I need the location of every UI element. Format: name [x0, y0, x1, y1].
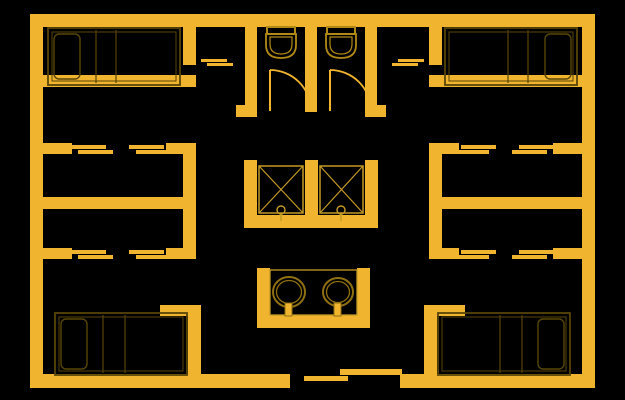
bed-pillow: [545, 34, 571, 79]
wall-closet-l-mid: [43, 197, 196, 209]
wall-outer-top: [30, 14, 595, 27]
door-swing-arc: [270, 70, 311, 111]
toilet-2: [326, 27, 356, 58]
sink-counter: [270, 270, 357, 315]
toilet-tank: [327, 27, 355, 34]
toilet-1: [266, 27, 296, 58]
wall-closet-l-bottom-a: [43, 248, 72, 259]
sliding-door-closet-r-top-2a: [461, 145, 496, 149]
wall-closet-l-top-a: [43, 143, 72, 154]
sliding-door-closet-r-top-2b: [454, 150, 489, 154]
sliding-door-closet-r-top-1a: [519, 145, 554, 149]
toilet-bowl-inner: [270, 37, 292, 54]
floor-plan-canvas: [0, 0, 625, 400]
wall-bedroom-br-west: [424, 305, 437, 388]
sink-faucet-1: [285, 303, 292, 316]
toilet-bowl-inner: [330, 37, 352, 54]
sliding-door-closet-r-top-1b: [512, 150, 547, 154]
sliding-door-closet-l-top-1a: [71, 145, 106, 149]
wall-wc-stall-left: [245, 27, 257, 117]
wall-wc-foot-left: [236, 105, 245, 117]
sliding-door-entrance-a: [304, 376, 348, 381]
sliding-door-closet-l-bottom-1b: [78, 255, 113, 259]
sliding-door-vestibule-l-b: [207, 63, 233, 66]
bed-pillow: [538, 319, 564, 369]
sliding-door-closet-r-bottom-2a: [461, 250, 496, 254]
sliding-door-closet-l-top-1b: [78, 150, 113, 154]
wall-closet-r-mid: [429, 197, 582, 209]
wc-swing-door-2: [330, 70, 371, 111]
sliding-door-closet-l-bottom-1a: [71, 250, 106, 254]
sliding-door-closet-r-bottom-2b: [454, 255, 489, 259]
bed-outline: [55, 313, 187, 375]
bed-pillow: [54, 34, 80, 79]
floor-plan: [0, 0, 625, 400]
sliding-door-entrance-b: [340, 369, 402, 375]
wall-bedroom-bl-north-stub: [160, 305, 201, 316]
basin-inner: [327, 282, 350, 303]
door-swing-arc: [330, 70, 371, 111]
wall-bedroom-br-north-stub: [424, 305, 465, 316]
wc-swing-door-1: [270, 70, 311, 111]
wall-vestibule-left: [183, 27, 196, 65]
wall-wc-stall-mid: [305, 27, 317, 112]
sliding-door-vestibule-l-a: [201, 59, 227, 62]
wall-elev-wall-bottom: [244, 215, 378, 228]
wall-closet-r-top-a: [553, 143, 582, 154]
sliding-door-closet-l-bottom-2a: [129, 250, 164, 254]
sliding-door-closet-l-bottom-2b: [136, 255, 171, 259]
toilet-tank: [267, 27, 295, 34]
bed-mattress-inner-line: [52, 32, 176, 81]
wall-vestibule-right: [429, 27, 442, 65]
bed-outline: [438, 313, 570, 375]
sink-basin-2: [323, 278, 353, 306]
bed-bottom-right: [438, 313, 570, 375]
basin-outer: [323, 278, 353, 306]
wall-sink-wall-bottom: [257, 315, 370, 328]
wall-bedroom-bl-east: [188, 305, 201, 388]
wall-outer-right: [582, 14, 595, 388]
bed-pillow: [61, 319, 87, 369]
sliding-door-vestibule-r-b: [392, 63, 418, 66]
wall-outer-bottom-left: [30, 374, 290, 388]
sliding-door-closet-r-bottom-1b: [512, 255, 547, 259]
bed-bottom-left: [55, 313, 187, 375]
bed-mattress-inner-line: [59, 317, 183, 371]
sliding-door-closet-l-top-2a: [129, 145, 164, 149]
bed-mattress-inner-line: [449, 32, 573, 81]
wall-wc-foot-right: [377, 105, 386, 117]
sliding-door-closet-l-top-2b: [136, 150, 171, 154]
bed-mattress-inner-line: [442, 317, 566, 371]
sliding-door-vestibule-r-a: [398, 59, 424, 62]
wall-outer-left: [30, 14, 43, 388]
sliding-door-closet-r-bottom-1a: [519, 250, 554, 254]
wall-closet-r-bottom-a: [553, 248, 582, 259]
basin-inner: [277, 281, 302, 304]
sink-faucet-2: [334, 303, 341, 316]
counter-outline: [270, 270, 357, 315]
